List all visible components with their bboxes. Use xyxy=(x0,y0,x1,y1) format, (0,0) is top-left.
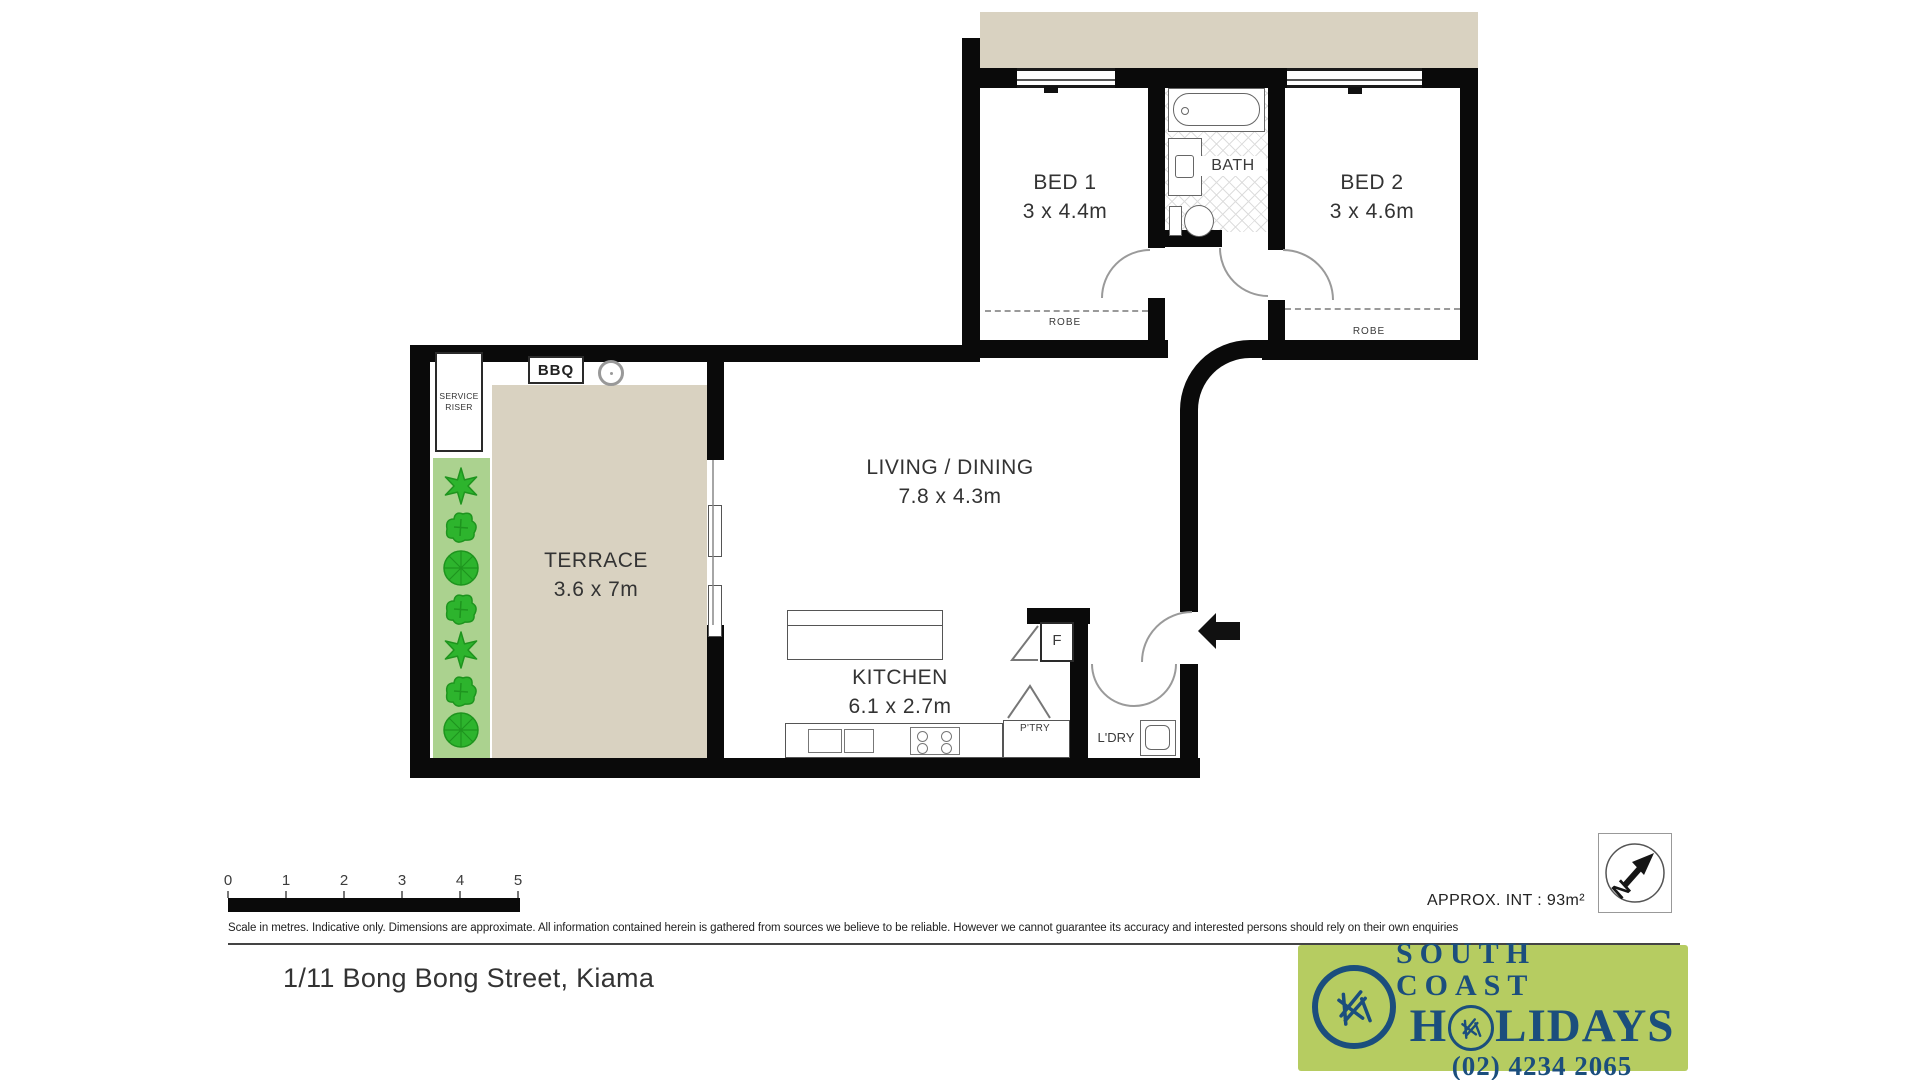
bush-plant-icon xyxy=(441,589,481,629)
approx-internal-area: APPROX. INT : 93m² xyxy=(1380,892,1585,910)
scale-tick xyxy=(343,891,345,898)
scale-tick-label: 1 xyxy=(274,872,298,889)
sliding-door-panel xyxy=(708,585,722,637)
logo-o-deck-chair-icon xyxy=(1448,1005,1494,1051)
sliding-door-panel xyxy=(708,505,722,557)
logo-rest: LIDAYS xyxy=(1495,1002,1674,1050)
bed2-door-arc xyxy=(1283,250,1333,300)
floor-plan-page: SERVICE RISER BBQ BED 13 xyxy=(0,0,1920,1080)
scale-tick-label: 2 xyxy=(332,872,356,889)
pantry-label: P'TRY xyxy=(1004,723,1066,734)
wall xyxy=(707,345,724,460)
star-plant-icon xyxy=(441,630,481,670)
wall xyxy=(707,345,980,362)
toilet-bowl xyxy=(1184,205,1214,237)
burner xyxy=(917,743,928,754)
wall xyxy=(1180,420,1198,612)
bbq-label: BBQ xyxy=(538,362,574,379)
wall xyxy=(962,340,1168,358)
fridge-door-flap xyxy=(1012,626,1038,660)
wall xyxy=(410,345,430,778)
logo-brand-top: SOUTH COAST xyxy=(1396,938,1688,1002)
burner xyxy=(941,743,952,754)
kitchen-sink-icon xyxy=(808,729,842,753)
disclaimer-text: Scale in metres. Indicative only. Dimens… xyxy=(228,922,1458,934)
robe-door-line xyxy=(985,310,1148,312)
bed2-label: BED 23 x 4.6m xyxy=(1292,168,1452,226)
robe-label: ROBE xyxy=(1324,326,1414,337)
bed1-door-arc xyxy=(1102,250,1150,298)
entry-arrow-icon xyxy=(1198,613,1240,649)
bbq-box: BBQ xyxy=(528,356,584,384)
burner xyxy=(941,731,952,742)
bathtub-icon xyxy=(1168,88,1265,132)
wall xyxy=(1180,340,1272,426)
agency-logo: SOUTH COAST HLIDAYS (02) 4234 2065 xyxy=(1298,945,1688,1071)
scale-tick xyxy=(517,891,519,898)
fridge-label: F xyxy=(1040,632,1074,649)
floor-plan: SERVICE RISER BBQ BED 13 xyxy=(0,0,1920,820)
basin xyxy=(1175,155,1194,178)
window-tick xyxy=(1348,87,1362,94)
round-plant-icon xyxy=(441,548,481,588)
wall xyxy=(1268,86,1285,250)
bath-door-arc xyxy=(1220,248,1268,296)
wall xyxy=(1268,300,1285,340)
bbq-sink-drain xyxy=(610,372,613,375)
kitchen-label: KITCHEN6.1 x 2.7m xyxy=(800,663,1000,721)
compass-icon: N xyxy=(1598,833,1672,913)
bed1-window xyxy=(1017,68,1115,88)
service-riser-label: SERVICE RISER xyxy=(439,391,478,413)
scale-tick-label: 0 xyxy=(216,872,240,889)
compass-glyph: N xyxy=(1603,841,1667,905)
deck-chair-badge-icon xyxy=(1312,965,1396,1049)
property-address: 1/11 Bong Bong Street, Kiama xyxy=(283,963,654,994)
logo-h: H xyxy=(1410,1002,1448,1050)
scale-tick xyxy=(459,891,461,898)
cooktop-icon xyxy=(910,727,960,755)
laundry-door-arc xyxy=(1092,664,1134,706)
wall xyxy=(410,758,1200,778)
bbq-sink-icon xyxy=(598,360,624,386)
scale-tick xyxy=(285,891,287,898)
bush-plant-icon xyxy=(441,507,481,547)
common-area-floor xyxy=(980,12,1478,68)
scale-tick xyxy=(227,891,229,898)
living-dining-label: LIVING / DINING7.8 x 4.3m xyxy=(840,453,1060,511)
robe-door-line xyxy=(1285,308,1460,310)
wall xyxy=(1148,86,1165,248)
robe-label: ROBE xyxy=(1020,317,1110,328)
scale-tick-label: 5 xyxy=(506,872,530,889)
scale-tick-label: 3 xyxy=(390,872,414,889)
laundry-tub-icon xyxy=(1140,720,1176,756)
bath-label: BATH xyxy=(1200,156,1266,176)
bed1-label: BED 13 x 4.4m xyxy=(985,168,1145,226)
island-edge-line xyxy=(788,625,942,626)
scale-bar: 0 1 2 3 4 5 xyxy=(0,860,700,920)
wall xyxy=(707,625,724,760)
kitchen-sink-icon xyxy=(844,729,874,753)
logo-phone: (02) 4234 2065 xyxy=(1452,1051,1632,1080)
kitchen-island xyxy=(787,610,943,660)
bush-plant-icon xyxy=(441,671,481,711)
entry-door-arc xyxy=(1142,612,1192,662)
scale-bar-rule xyxy=(228,898,520,912)
round-plant-icon xyxy=(441,710,481,750)
tub-inner xyxy=(1145,725,1170,750)
vanity-icon xyxy=(1168,138,1202,196)
scale-tick xyxy=(401,891,403,898)
wall xyxy=(1262,340,1460,360)
service-riser-box: SERVICE RISER xyxy=(435,352,483,452)
wall xyxy=(1115,68,1287,88)
toilet-icon xyxy=(1169,206,1182,236)
scale-tick-label: 4 xyxy=(448,872,472,889)
burner xyxy=(917,731,928,742)
terrace-label: TERRACE3.6 x 7m xyxy=(500,546,692,604)
bathtub-drain xyxy=(1181,107,1189,115)
logo-text: SOUTH COAST HLIDAYS (02) 4234 2065 xyxy=(1396,945,1688,1071)
star-plant-icon xyxy=(441,466,481,506)
laundry-door-arc xyxy=(1134,664,1176,706)
wall xyxy=(962,68,1017,88)
logo-brand-bottom: HLIDAYS xyxy=(1410,1002,1675,1050)
wall xyxy=(1148,230,1222,247)
bed2-window xyxy=(1287,68,1422,88)
pantry-bifold-door xyxy=(1008,686,1050,718)
laundry-label: L'DRY xyxy=(1088,730,1144,745)
wall xyxy=(1460,68,1478,360)
